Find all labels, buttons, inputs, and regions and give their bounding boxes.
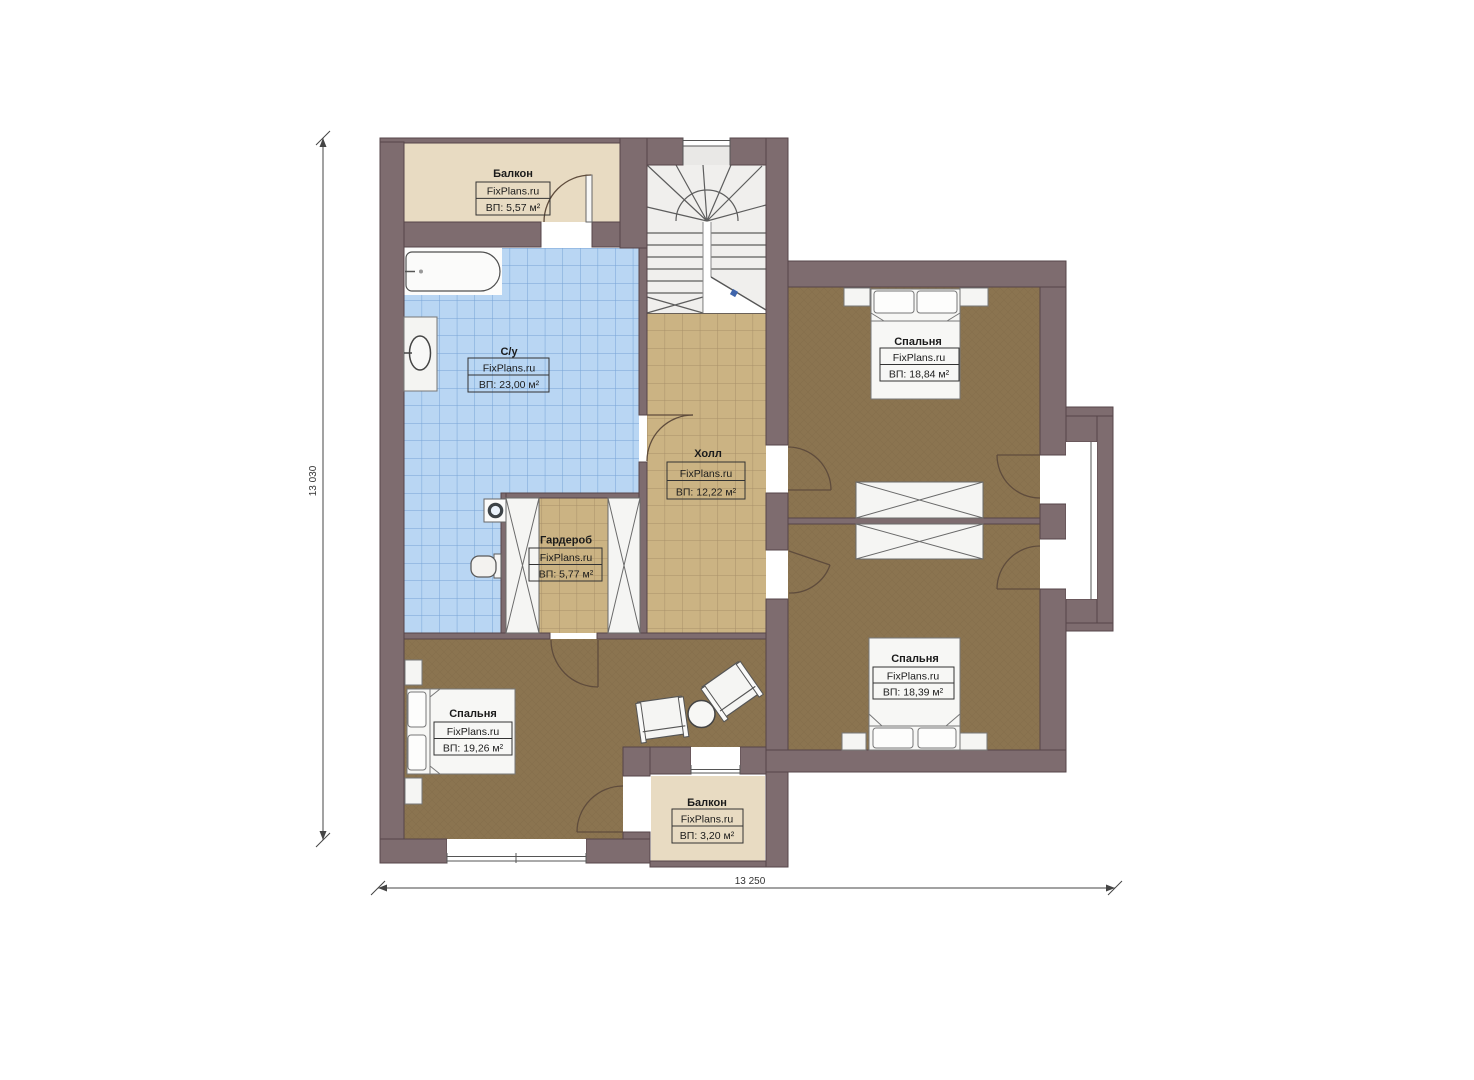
- svg-text:Балкон: Балкон: [687, 797, 727, 809]
- svg-text:FixPlans.ru: FixPlans.ru: [447, 726, 500, 738]
- svg-text:С/у: С/у: [500, 346, 518, 358]
- svg-text:Балкон: Балкон: [493, 168, 533, 180]
- svg-text:Спальня: Спальня: [891, 653, 939, 665]
- svg-text:FixPlans.ru: FixPlans.ru: [540, 552, 593, 564]
- svg-text:FixPlans.ru: FixPlans.ru: [887, 671, 940, 683]
- svg-text:Спальня: Спальня: [449, 708, 497, 720]
- svg-text:Холл: Холл: [694, 448, 722, 460]
- svg-text:FixPlans.ru: FixPlans.ru: [680, 468, 733, 480]
- svg-text:ВП: 18,39 м²: ВП: 18,39 м²: [883, 687, 944, 699]
- svg-text:ВП: 5,77 м²: ВП: 5,77 м²: [539, 569, 594, 581]
- svg-text:ВП: 19,26 м²: ВП: 19,26 м²: [443, 743, 504, 755]
- svg-text:ВП: 23,00 м²: ВП: 23,00 м²: [479, 379, 540, 391]
- svg-text:FixPlans.ru: FixPlans.ru: [681, 814, 734, 826]
- svg-text:ВП: 18,84 м²: ВП: 18,84 м²: [889, 369, 950, 381]
- svg-text:13 250: 13 250: [735, 876, 766, 887]
- svg-text:ВП: 5,57 м²: ВП: 5,57 м²: [486, 202, 541, 214]
- svg-text:FixPlans.ru: FixPlans.ru: [483, 363, 536, 375]
- svg-text:FixPlans.ru: FixPlans.ru: [487, 186, 540, 198]
- svg-text:Спальня: Спальня: [894, 336, 942, 348]
- svg-text:FixPlans.ru: FixPlans.ru: [893, 352, 946, 364]
- svg-text:ВП: 3,20 м²: ВП: 3,20 м²: [680, 830, 735, 842]
- svg-text:13 030: 13 030: [308, 465, 319, 496]
- svg-text:ВП: 12,22 м²: ВП: 12,22 м²: [676, 487, 737, 499]
- svg-text:Гардероб: Гардероб: [540, 535, 592, 547]
